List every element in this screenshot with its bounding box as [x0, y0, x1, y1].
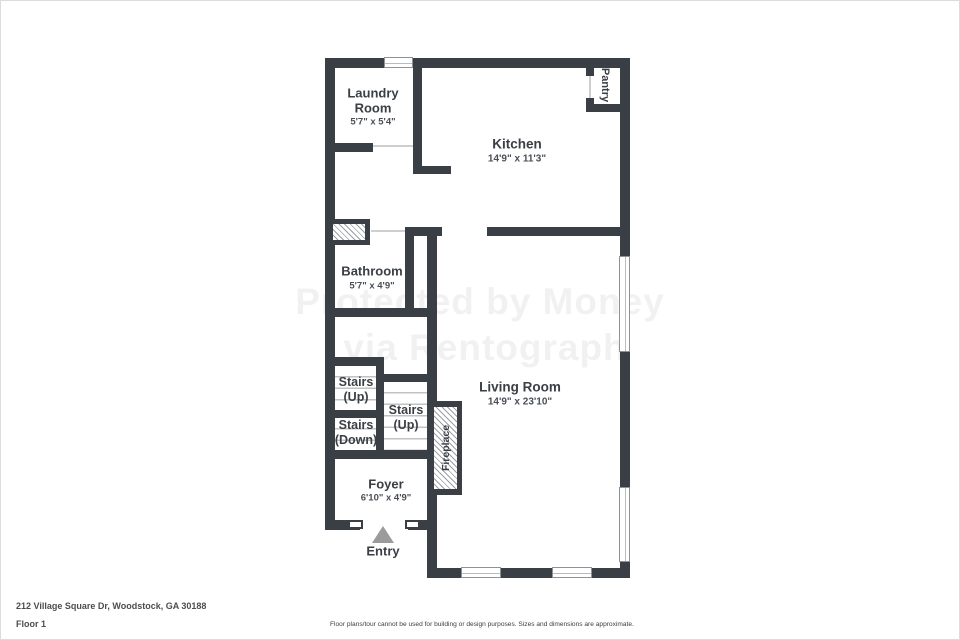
wall: [413, 166, 451, 174]
bathroom-label: Bathroom: [341, 264, 402, 279]
living-room-dimensions: 14'9" x 23'10": [488, 397, 552, 408]
stairs-down-label-line1: Stairs: [339, 418, 374, 432]
entry-label: Entry: [366, 544, 399, 559]
wall: [586, 104, 630, 112]
door-opening: [371, 230, 405, 232]
wall: [325, 58, 335, 530]
entry-arrow-icon: [372, 526, 394, 543]
floor-number: Floor 1: [16, 619, 46, 629]
stairs-up-left-label-line2: (Up): [344, 390, 369, 404]
closet-hatch: [333, 224, 365, 240]
fireplace-label: Fireplace: [440, 425, 452, 471]
stairs-up-right-label-line2: (Up): [394, 418, 419, 432]
door-jamb: [405, 520, 420, 529]
laundry-room-dimensions: 5'7" x 5'4": [350, 117, 395, 128]
window: [552, 567, 592, 578]
door-opening: [589, 76, 591, 98]
watermark-line-2: via Rentograph: [343, 327, 626, 369]
stairs-down-label-line2: (Down): [335, 433, 377, 447]
wall: [325, 308, 437, 317]
property-address: 212 Village Square Dr, Woodstock, GA 301…: [16, 601, 206, 611]
window: [619, 256, 630, 352]
pantry-label: Pantry: [599, 68, 611, 102]
window: [619, 487, 630, 562]
wall: [405, 227, 414, 316]
laundry-room-label-line1: Laundry: [347, 86, 398, 101]
wall: [376, 374, 437, 382]
kitchen-label: Kitchen: [492, 137, 542, 152]
wall: [376, 357, 384, 459]
wall: [586, 58, 594, 76]
wall: [427, 568, 630, 578]
wall: [325, 58, 630, 68]
wall: [335, 410, 376, 418]
window: [384, 57, 413, 68]
door-jamb: [348, 520, 363, 529]
foyer-label: Foyer: [368, 477, 403, 492]
window: [461, 567, 501, 578]
stairs-up-left-label-line1: Stairs: [339, 375, 374, 389]
kitchen-dimensions: 14'9" x 11'3": [488, 154, 546, 165]
wall: [487, 227, 630, 236]
wall: [427, 227, 437, 568]
disclaimer-text: Floor plans/tour cannot be used for buil…: [330, 621, 633, 628]
door-opening: [373, 145, 413, 147]
living-room-label: Living Room: [479, 380, 561, 395]
floor-plan-page: Protected by Money via Rentograph Firepl…: [0, 0, 960, 640]
stairs-up-right-label-line1: Stairs: [389, 403, 424, 417]
bathroom-dimensions: 5'7" x 4'9": [349, 281, 394, 292]
wall: [325, 450, 437, 459]
foyer-dimensions: 6'10" x 4'9": [361, 493, 412, 504]
wall: [413, 58, 422, 174]
laundry-room-label-line2: Room: [355, 101, 392, 116]
wall: [325, 143, 373, 152]
